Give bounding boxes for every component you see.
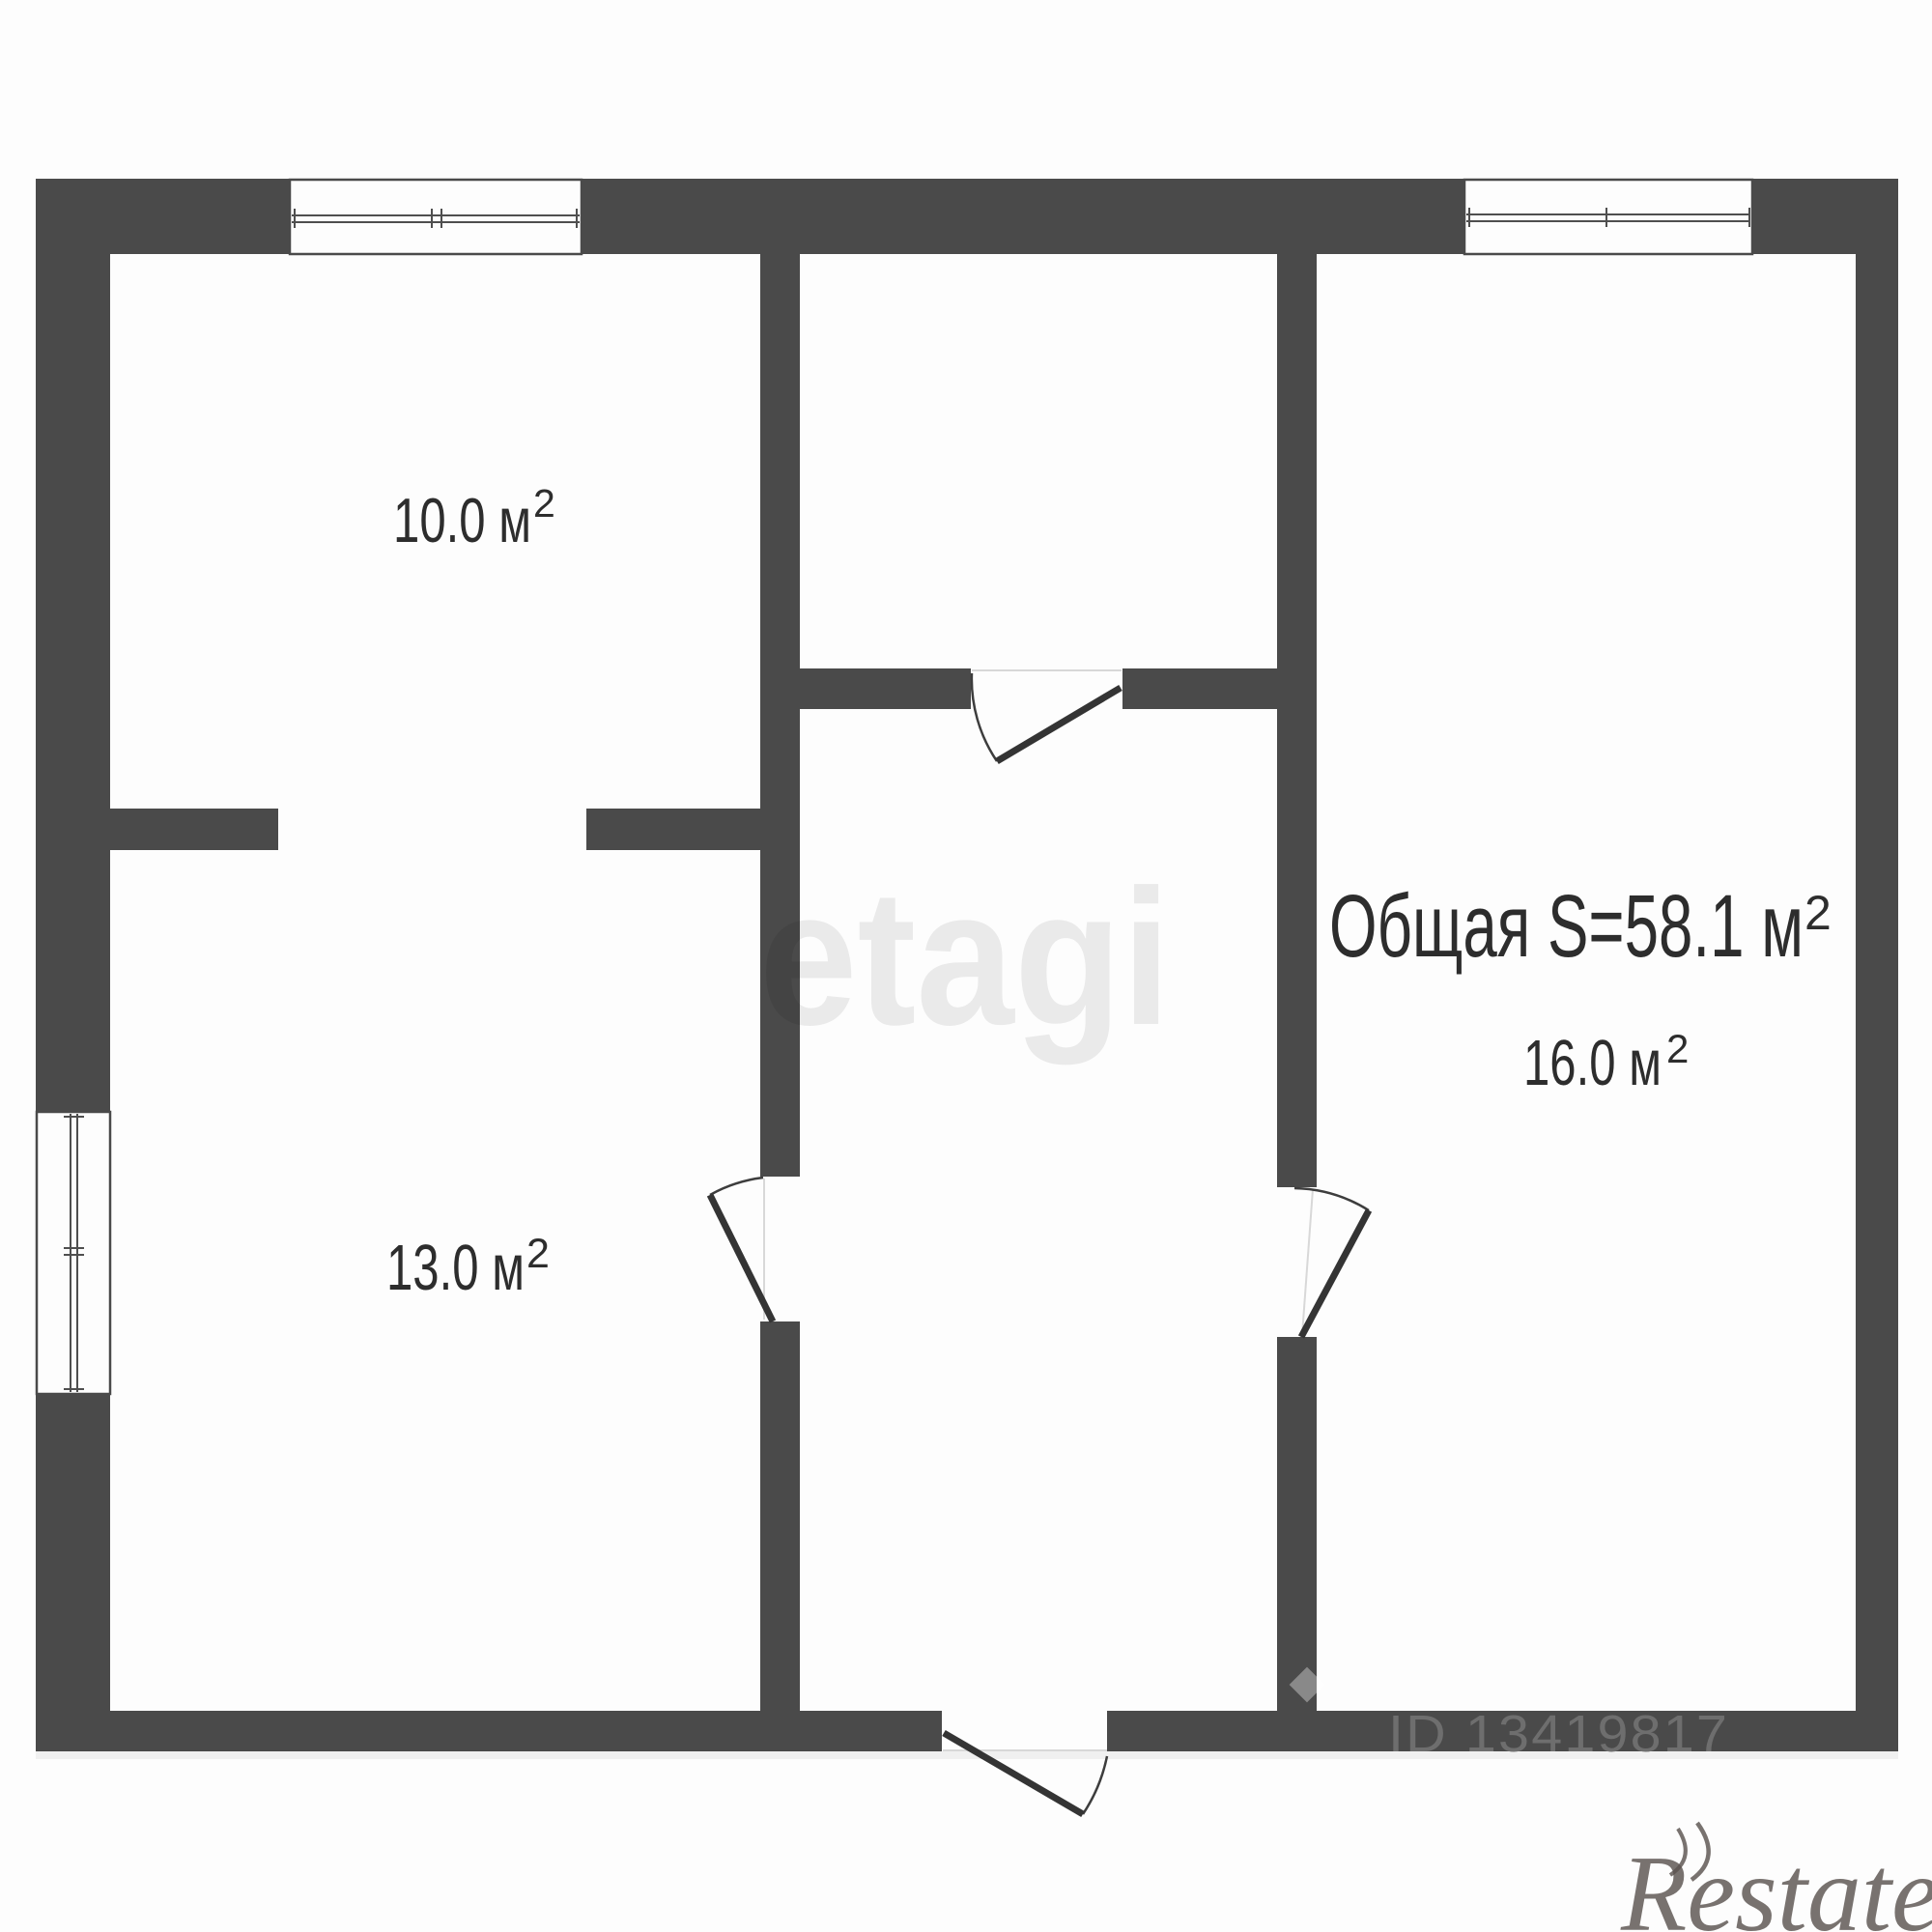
svg-text:2: 2	[526, 1231, 550, 1277]
svg-text:ID 13419817: ID 13419817	[1388, 1705, 1729, 1763]
svg-text:etagi: etagi	[759, 850, 1171, 1065]
svg-text:13.0 м: 13.0 м	[386, 1232, 525, 1304]
svg-text:16.0 м: 16.0 м	[1523, 1027, 1662, 1099]
svg-text:10.0 м: 10.0 м	[393, 485, 531, 555]
svg-text:2: 2	[1666, 1026, 1689, 1071]
svg-text:2: 2	[533, 481, 555, 526]
svg-text:Общая S=58.1 м: Общая S=58.1 м	[1329, 877, 1804, 976]
svg-text:Restate: Restate	[1620, 1834, 1932, 1932]
svg-text:2: 2	[1804, 886, 1832, 940]
